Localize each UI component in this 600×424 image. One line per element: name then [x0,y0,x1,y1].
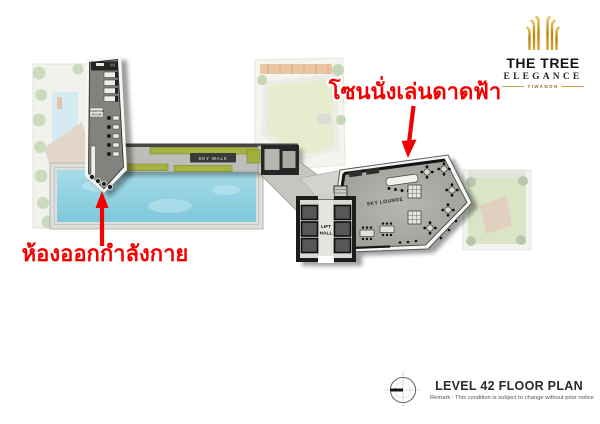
rooftop-callout-label: โซนนั่งเล่นดาดฟ้า [328,75,501,104]
brand-tagline: ELEGANCE [496,72,590,82]
brand-location-row: TIWANON [496,84,590,89]
sky-walk-label: SKY WALK [198,156,227,161]
rooftop-callout-arrow [402,106,417,158]
floor-plan-page: SKY WALK [0,0,600,424]
planter-box [247,150,260,163]
exercise-room-label-plate: EXERCISE ROOM [89,108,104,117]
title-block: LEVEL 42 FLOOR PLAN Remark : This condit… [383,367,588,413]
bench-press-icon [91,146,96,176]
exercise-room-label-line2: ROOM [92,113,102,117]
pool-water [57,170,256,222]
plan-remark: Remark : This condition is subject to ch… [430,395,588,401]
plan-title: LEVEL 42 FLOOR PLAN [430,379,588,393]
lift-hall-label-line2: HALL [320,231,333,237]
title-text-group: LEVEL 42 FLOOR PLAN Remark : This condit… [430,379,588,401]
gold-divider-line [562,86,584,88]
lift-hall: LIFT HALL [296,194,356,264]
gold-divider-line [502,86,524,88]
gym-building: EXERCISE ROOM [85,56,127,193]
brand-name: THE TREE [496,55,590,71]
north-compass-icon [383,367,423,413]
lift-hall-label-line1: LIFT [321,224,331,230]
service-room-block [261,145,299,175]
gym-callout-label: ห้องออกกำลังกาย [22,241,189,266]
golden-tree-icon [524,13,562,53]
brand-location: TIWANON [527,84,558,89]
brand-logo: THE TREE ELEGANCE TIWANON [496,13,590,89]
